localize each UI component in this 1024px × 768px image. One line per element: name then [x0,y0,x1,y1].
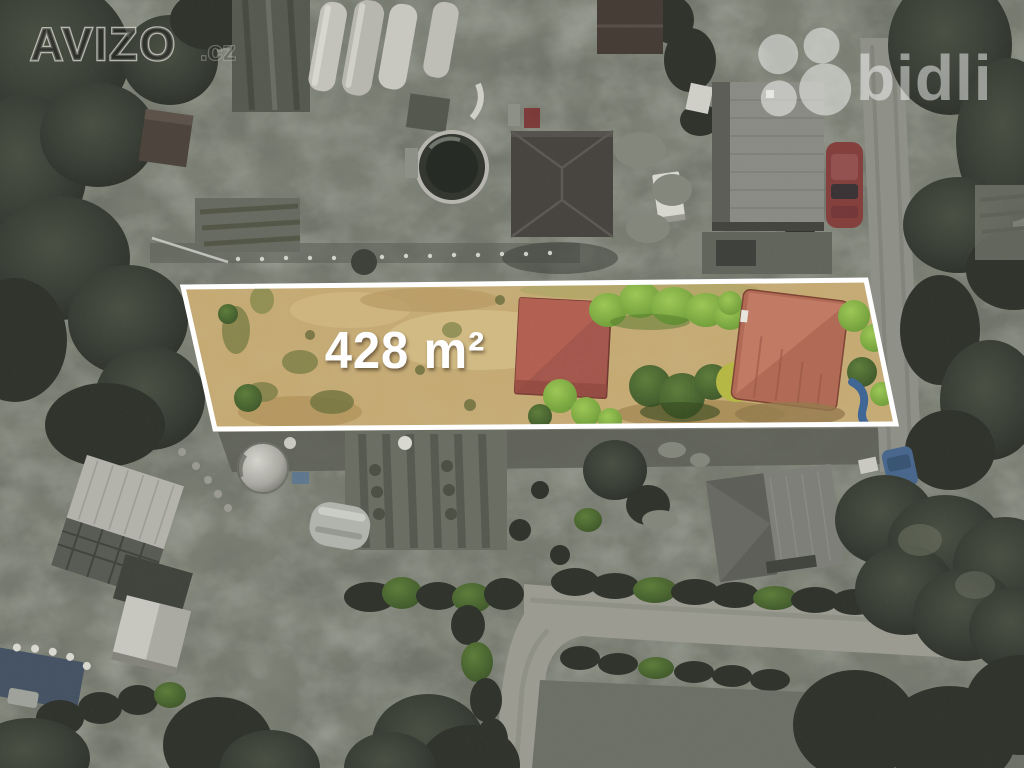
scene-canvas: 428 m² AVIZO .cz bidli [0,0,1024,768]
film-grain-overlay [0,0,1024,768]
aerial-listing-photo: 428 m² AVIZO .cz bidli [0,0,1024,768]
avizo-watermark-text: AVIZO [30,18,177,70]
avizo-watermark-suffix: .cz [200,36,236,66]
bidli-logo-text: bidli [856,42,993,114]
